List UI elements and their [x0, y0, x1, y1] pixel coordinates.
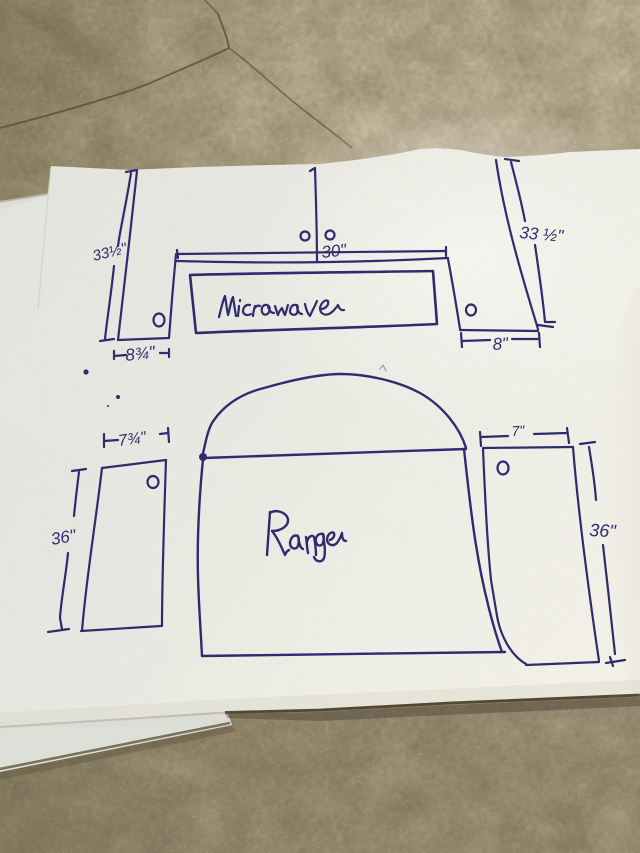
svg-text:8": 8"	[492, 334, 510, 354]
svg-text:7": 7"	[511, 422, 526, 439]
svg-text:36": 36"	[589, 520, 618, 541]
svg-text:30": 30"	[320, 240, 348, 262]
svg-text:33 ½": 33 ½"	[519, 223, 565, 246]
svg-text:8¾": 8¾"	[124, 342, 157, 365]
